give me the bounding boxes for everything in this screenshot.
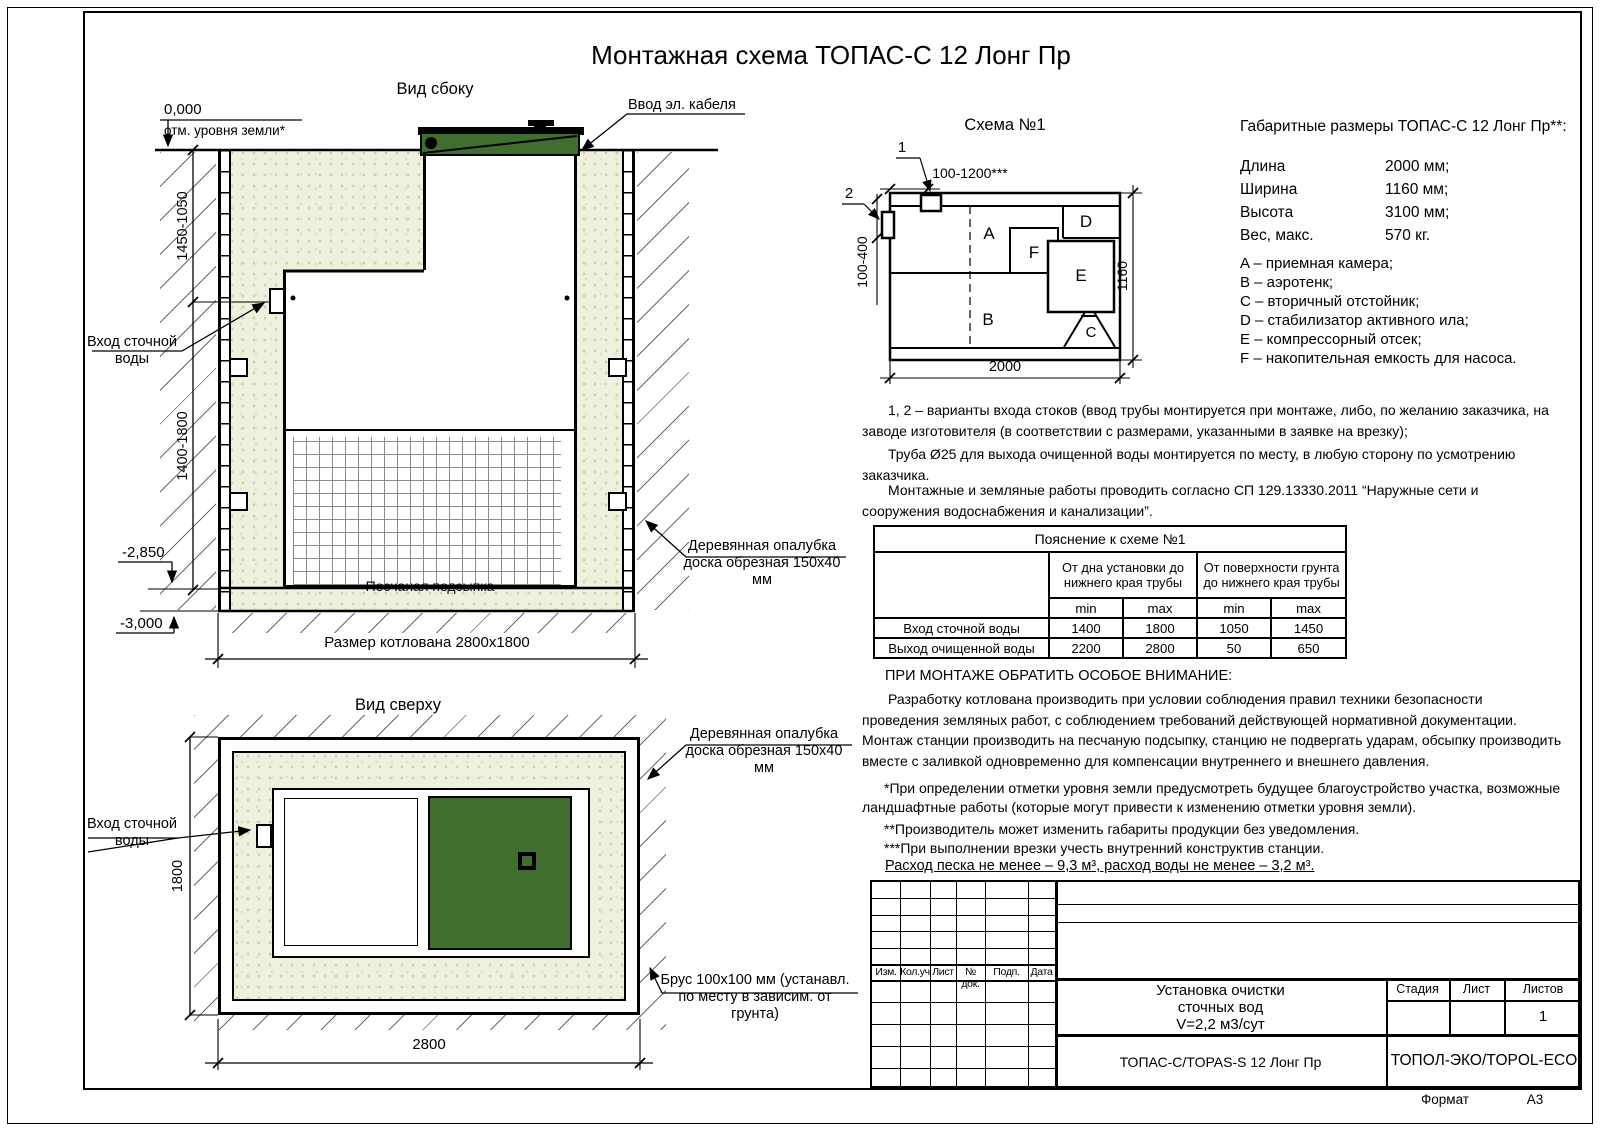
spec-name: Ширина [1240, 181, 1297, 199]
product-title-line3: V=2,2 м3/сут [1065, 1016, 1376, 1033]
dim-lower-depth: 1400-1800 [175, 401, 191, 491]
spec-name: Высота [1240, 204, 1293, 222]
company-name: ТОПОЛ-ЭКО/TOPOL-ECO [1386, 1052, 1582, 1070]
spec-name: Длина [1240, 158, 1285, 176]
compartment-c: C [1081, 324, 1101, 341]
top-view-label: Вид сверху [338, 696, 458, 715]
dim-upper-depth: 1450-1050 [175, 181, 191, 271]
side-view-label: Вид сбоку [375, 80, 495, 99]
legend-item: E – компрессорный отсек; [1240, 331, 1422, 348]
sheets-value: 1 [1504, 1008, 1582, 1025]
footnote-2: **Производитель может изменить габариты … [862, 820, 1562, 839]
consumption-note: Расход песка не менее – 9,3 м³, расход в… [885, 858, 1314, 874]
pit-size-label: Размер котлована 2800х1800 [317, 634, 537, 651]
compartment-d: D [1076, 212, 1096, 232]
note-outlet-pipe: Труба Ø25 для выхода очищенной воды монт… [862, 444, 1562, 485]
legend-item: A – приемная камера; [1240, 255, 1393, 272]
legend-item: C – вторичный отстойник; [1240, 293, 1419, 310]
formwork-label-side: Деревянная опалубка доска обрезная 150х4… [678, 538, 846, 589]
sheets-label: Листов [1504, 982, 1582, 996]
compartment-f: F [1024, 243, 1044, 263]
spec-value: 2000 мм; [1385, 158, 1449, 176]
rev-col-izm: Изм. [872, 966, 900, 978]
legend-item: F – накопительная емкость для насоса. [1240, 350, 1517, 367]
spec-value: 3100 мм; [1385, 204, 1449, 222]
legend-item: B – аэротенк; [1240, 274, 1333, 291]
footnote-1: *При определении отметки уровня земли пр… [862, 779, 1562, 817]
sand-bedding-label: Песчаная подсыпка [340, 578, 520, 594]
compartment-b: B [978, 310, 998, 330]
stage-label: Стадия [1386, 982, 1449, 996]
title-block: Изм. Кол.уч Лист № док. Подп. Дата Устан… [870, 880, 1580, 1088]
note-sp-standard: Монтажные и земляные работы проводить со… [862, 480, 1557, 521]
table-cell: 650 [1271, 638, 1346, 658]
rev-col-koluch: Кол.уч [900, 966, 930, 978]
table-cell: 1050 [1197, 618, 1271, 638]
footnote-3: ***При выполнении врезки учесть внутренн… [862, 839, 1562, 858]
schema-dim-bottom: 2000 [975, 359, 1035, 375]
table-title: Пояснение к схеме №1 [874, 526, 1346, 552]
warning-body: Разработку котлована производить при усл… [862, 689, 1562, 771]
rev-col-podp: Подп. [985, 966, 1028, 978]
dim-pit-width: 1800 [170, 846, 186, 906]
sheet-label: Лист [1449, 982, 1504, 996]
table-cell: 1400 [1049, 618, 1123, 638]
table-cell: 50 [1197, 638, 1271, 658]
inlet-label-side: Вход сточной воды [82, 334, 182, 368]
table-sub-header: min [1049, 598, 1123, 618]
schema-dim-top: 100-1200*** [920, 165, 1020, 181]
product-title-line2: сточных вод [1065, 999, 1376, 1016]
rev-col-ndok: № док. [956, 966, 985, 990]
compartment-a: A [979, 224, 999, 244]
product-title-line1: Установка очистки [1065, 982, 1376, 999]
legend-item: D – стабилизатор активного ила; [1240, 312, 1469, 329]
dim-pit-length: 2800 [379, 1036, 479, 1053]
drawing-sheet: Монтажная схема ТОПАС-С 12 Лонг Пр Вид с… [0, 0, 1600, 1131]
zero-mark: 0,000 [164, 101, 202, 118]
table-row-name: Вход сточной воды [874, 618, 1049, 638]
spec-name: Вес, макс. [1240, 227, 1314, 245]
table-cell: 1800 [1123, 618, 1197, 638]
compartment-e: E [1071, 266, 1091, 286]
spec-value: 1160 мм; [1385, 181, 1448, 199]
table-cell: 2800 [1123, 638, 1197, 658]
specs-title: Габаритные размеры ТОПАС-С 12 Лонг Пр**: [1240, 118, 1567, 136]
note-variants: 1, 2 – варианты входа стоков (ввод трубы… [862, 400, 1557, 441]
level-bottom-mark: -3,000 [120, 615, 163, 632]
table-group-2: От поверхности грунта до нижнего края тр… [1197, 552, 1346, 598]
table-cell: 2200 [1049, 638, 1123, 658]
formwork-label-top: Деревянная опалубка доска обрезная 150х4… [678, 726, 850, 777]
warning-heading: ПРИ МОНТАЖЕ ОБРАТИТЬ ОСОБОЕ ВНИМАНИЕ: [885, 668, 1232, 684]
schema-marker-1: 1 [893, 139, 911, 156]
schema-marker-2: 2 [840, 185, 858, 202]
model-name: ТОПАС-С/TOPAS-S 12 Лонг Пр [1055, 1054, 1386, 1070]
schema-label: Схема №1 [945, 116, 1065, 135]
table-cell: 1450 [1271, 618, 1346, 638]
format-label: Формат [1395, 1092, 1495, 1107]
zero-mark-label: отм. уровня земли* [164, 123, 285, 138]
beam-label: Брус 100х100 мм (устанавл. по месту в за… [655, 972, 855, 1023]
rev-col-data: Дата [1028, 966, 1055, 978]
schema-dim-right: 1160 [1114, 246, 1130, 306]
table-row-name: Выход очищенной воды [874, 638, 1049, 658]
drawing-title: Монтажная схема ТОПАС-С 12 Лонг Пр [431, 40, 1231, 71]
format-value: А3 [1515, 1092, 1555, 1107]
table-sub-header: max [1271, 598, 1346, 618]
inlet-label-top: Вход сточной воды [82, 816, 182, 850]
level-sand-mark: -2,850 [122, 544, 165, 561]
rev-col-list: Лист [930, 966, 956, 978]
table-empty-head [874, 552, 1049, 618]
schema-dim-left: 100-400 [854, 222, 870, 302]
cable-entry-label: Ввод эл. кабеля [628, 97, 736, 113]
table-sub-header: min [1197, 598, 1271, 618]
spec-value: 570 кг. [1385, 227, 1430, 245]
table-group-1: От дна установки до нижнего края трубы [1049, 552, 1197, 598]
explanation-table: Пояснение к схеме №1 От дна установки до… [873, 525, 1347, 659]
table-sub-header: max [1123, 598, 1197, 618]
